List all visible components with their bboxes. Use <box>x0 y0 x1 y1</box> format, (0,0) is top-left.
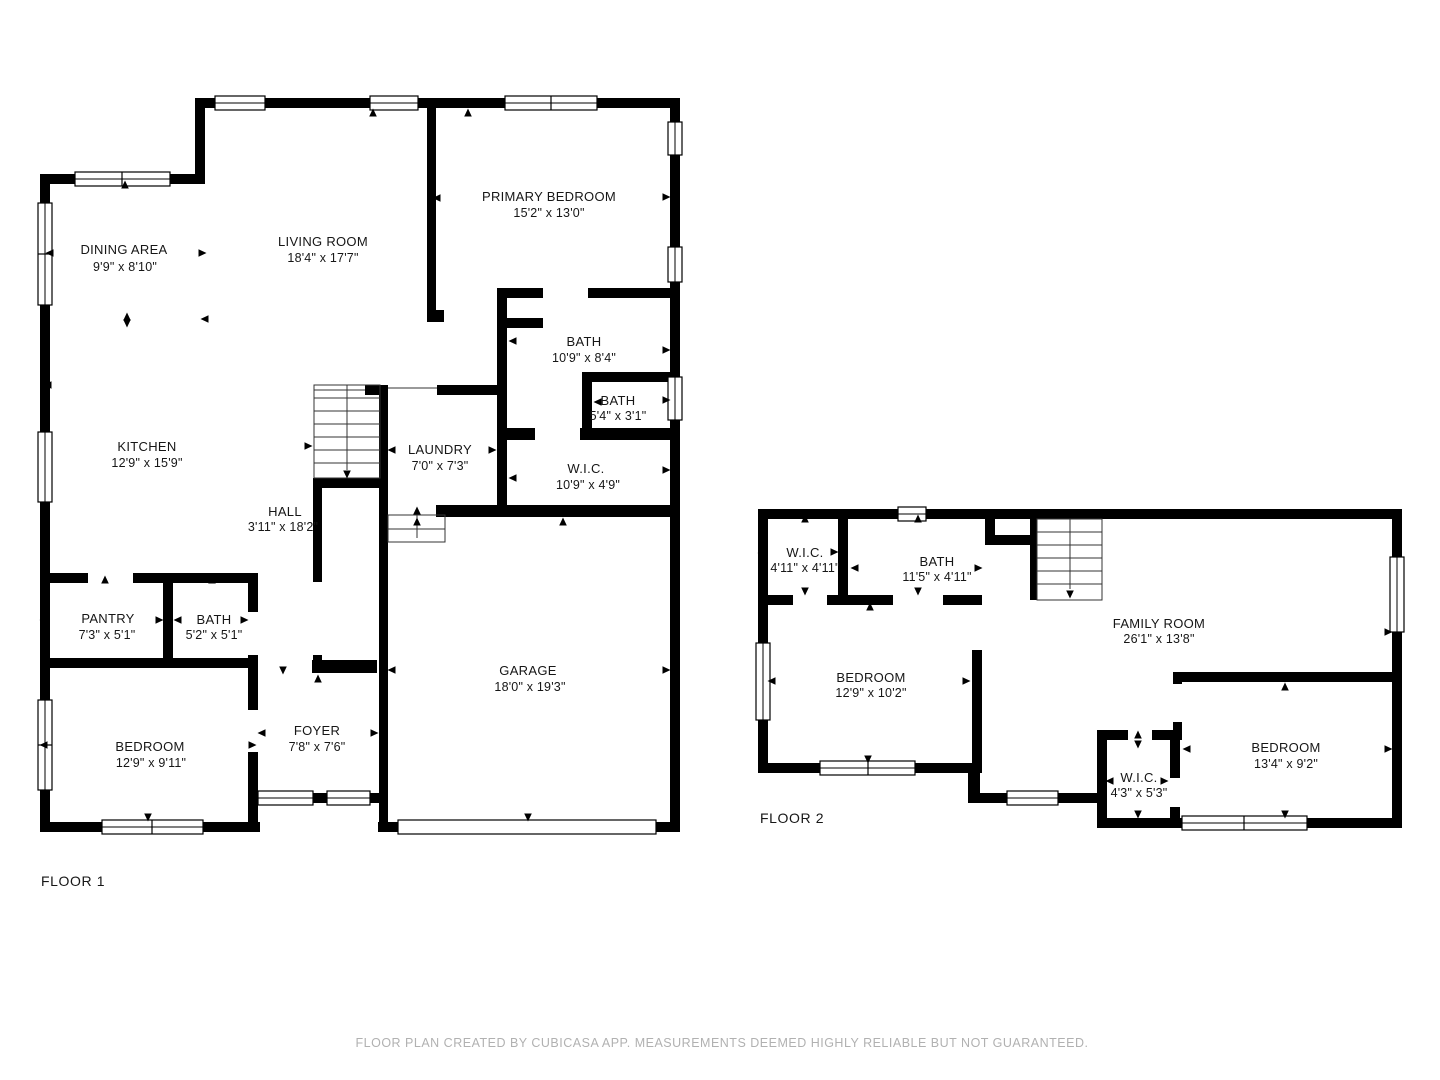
wall-segment <box>1173 722 1182 740</box>
room-label-bath-2: BATH <box>197 612 232 627</box>
wall-segment <box>378 822 400 832</box>
wall-segment <box>580 428 680 440</box>
wall-segment <box>1097 730 1107 828</box>
wall-segment <box>1170 807 1180 828</box>
wall-segment <box>427 310 444 322</box>
wall-segment <box>40 658 258 668</box>
room-label-kitchen: KITCHEN <box>117 439 176 454</box>
wall-segment <box>1173 672 1182 684</box>
floor1-label: FLOOR 1 <box>41 873 105 889</box>
room-label-bath-1: BATH <box>567 334 602 349</box>
wall-segment <box>195 98 205 184</box>
room-label-bath-small: BATH <box>601 393 636 408</box>
room-dims-garage: 18'0" x 19'3" <box>494 680 565 694</box>
wall-segment <box>497 318 543 328</box>
wall-segment <box>365 385 388 395</box>
footer-note: FLOOR PLAN CREATED BY CUBICASA APP. MEAS… <box>356 1036 1089 1050</box>
room-dims-living-room: 18'4" x 17'7" <box>287 251 358 265</box>
wall-segment <box>758 595 793 605</box>
wall-segment <box>588 288 680 298</box>
room-label-bedroom-f2a: BEDROOM <box>836 670 905 685</box>
wall-segment <box>133 573 258 583</box>
wall-segment <box>248 752 258 832</box>
wall-segment <box>437 385 497 395</box>
wall-segment <box>313 478 380 488</box>
wall-segment <box>1170 740 1180 778</box>
wall-segment <box>670 98 680 832</box>
floor2-label: FLOOR 2 <box>760 810 824 826</box>
room-label-wic-f2b: W.I.C. <box>1120 770 1157 785</box>
room-label-bedroom-f1: BEDROOM <box>115 739 184 754</box>
wall-segment <box>40 573 88 583</box>
wall-segment <box>248 655 258 668</box>
wall-segment <box>248 573 258 612</box>
floor-plan-canvas: DINING AREA 9'9" x 8'10" LIVING ROOM 18'… <box>0 0 1440 1080</box>
wall-segment <box>370 793 379 803</box>
wall-segment <box>313 793 327 803</box>
room-label-dining-area: DINING AREA <box>80 242 167 257</box>
room-label-garage: GARAGE <box>499 663 556 678</box>
room-label-laundry: LAUNDRY <box>408 442 472 457</box>
room-dims-bedroom-f1: 12'9" x 9'11" <box>116 756 186 770</box>
room-dims-pantry: 7'3" x 5'1" <box>79 628 136 642</box>
room-dims-hall: 3'11" x 18'2" <box>248 520 318 534</box>
room-dims-primary-bedroom: 15'2" x 13'0" <box>513 206 584 220</box>
wall-segment <box>582 372 680 382</box>
room-label-foyer: FOYER <box>294 723 340 738</box>
wall-segment <box>656 822 680 832</box>
room-dims-bath-2: 5'2" x 5'1" <box>186 628 243 642</box>
room-dims-foyer: 7'8" x 7'6" <box>289 740 346 754</box>
wall-segment <box>427 108 436 314</box>
room-label-primary-bedroom: PRIMARY BEDROOM <box>482 189 616 204</box>
wall-segment <box>505 428 535 440</box>
wall-segment <box>758 509 1402 519</box>
wall-segment <box>758 509 768 773</box>
room-label-pantry: PANTRY <box>81 611 134 626</box>
room-dims-family-room: 26'1" x 13'8" <box>1123 632 1194 646</box>
wall-segment <box>972 650 982 773</box>
wall-segment <box>972 595 982 605</box>
room-label-bath-f2: BATH <box>920 554 955 569</box>
room-label-living-room: LIVING ROOM <box>278 234 368 249</box>
wall-segment <box>497 288 543 298</box>
wall-segment <box>985 509 995 545</box>
wall-segment <box>1030 509 1037 600</box>
room-dims-laundry: 7'0" x 7'3" <box>412 459 469 473</box>
room-dims-dining-area: 9'9" x 8'10" <box>93 260 157 274</box>
room-dims-wic-f2b: 4'3" x 5'3" <box>1111 786 1168 800</box>
room-dims-bedroom-f2b: 13'4" x 9'2" <box>1254 757 1318 771</box>
room-label-wic-f2a: W.I.C. <box>786 545 823 560</box>
room-label-hall: HALL <box>268 504 302 519</box>
room-dims-kitchen: 12'9" x 15'9" <box>111 456 182 470</box>
wall-segment <box>1097 730 1128 740</box>
room-dims-bath-1: 10'9" x 8'4" <box>552 351 616 365</box>
garage-door-icon <box>398 820 656 834</box>
room-label-family-room: FAMILY ROOM <box>1113 616 1205 631</box>
wall-segment <box>312 660 377 673</box>
wall-segment <box>195 98 677 108</box>
page-background <box>0 0 1440 1080</box>
wall-segment <box>163 573 173 668</box>
room-dims-wic-1: 10'9" x 4'9" <box>556 478 620 492</box>
wall-segment <box>436 505 680 517</box>
room-label-bedroom-f2b: BEDROOM <box>1251 740 1320 755</box>
room-dims-bedroom-f2a: 12'9" x 10'2" <box>835 686 906 700</box>
wall-segment <box>838 509 848 605</box>
room-dims-bath-small: 5'4" x 3'1" <box>590 409 647 423</box>
wall-segment <box>1097 818 1182 828</box>
wall-segment <box>827 595 893 605</box>
room-dims-bath-f2: 11'5" x 4'11" <box>902 570 971 584</box>
room-dims-wic-f2a: 4'11" x 4'11" <box>770 561 839 575</box>
wall-segment <box>248 668 258 710</box>
room-label-wic-1: W.I.C. <box>567 461 604 476</box>
